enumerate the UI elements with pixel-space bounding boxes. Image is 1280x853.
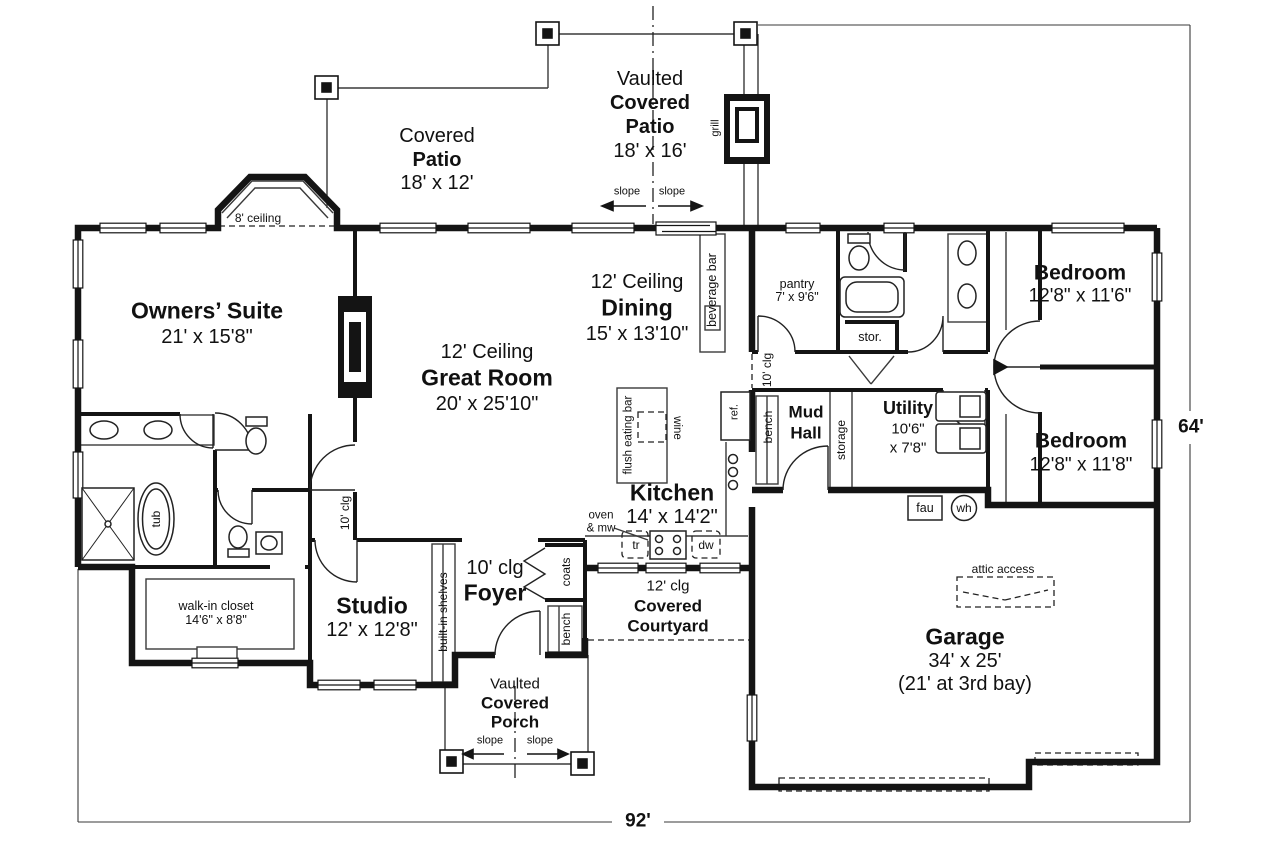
washer-dryer — [936, 392, 986, 453]
pantry-name: pantry — [780, 278, 815, 291]
vaulted-patio-line3: Patio — [626, 117, 675, 137]
storage-closet-label: stor. — [858, 331, 882, 344]
garage-dims: 34' x 25' — [928, 651, 1001, 671]
bedroom-upper-dims: 12'8" x 11'6" — [1029, 287, 1132, 306]
kitchen-name: Kitchen — [630, 482, 714, 505]
courtyard-line2: Courtyard — [627, 618, 708, 635]
dining-ceiling: 12' Ceiling — [591, 272, 684, 292]
beverage-bar-label: beverage bar — [706, 253, 719, 327]
owners-suite-dims: 21' x 15'8" — [161, 327, 252, 347]
bathtub — [840, 277, 904, 317]
great-room-dims: 20' x 25'10" — [436, 394, 539, 414]
fireplace — [338, 296, 372, 398]
master-hall-ceiling-label: 10' clg — [339, 496, 351, 530]
fau-label: fau — [916, 502, 933, 515]
attic-access-label: attic access — [972, 563, 1035, 575]
dining-name: Dining — [601, 297, 673, 320]
wall-ovens — [729, 455, 738, 490]
porch-line1: Vaulted — [490, 677, 540, 692]
dining-dims: 15' x 13'10" — [586, 324, 689, 344]
outline-lines — [80, 34, 1006, 764]
studio-dims: 12' x 12'8" — [326, 620, 417, 640]
great-room-ceiling: 12' Ceiling — [441, 342, 534, 362]
patio-slider-door — [656, 222, 716, 235]
covered-patio-line1: Covered — [399, 126, 475, 146]
tub-label: tub — [150, 511, 162, 528]
garage-note: (21' at 3rd bay) — [898, 674, 1032, 694]
shower — [82, 488, 134, 560]
studio-name: Studio — [336, 595, 408, 618]
courtyard-line1: Covered — [634, 598, 702, 615]
bedroom-upper-name: Bedroom — [1034, 263, 1126, 284]
grill-label: grill — [711, 119, 722, 136]
flush-eating-bar-label: flush eating bar — [623, 396, 635, 475]
range — [650, 531, 686, 559]
kitchen-dims: 14' x 14'2" — [626, 507, 717, 527]
door-meet-marker — [994, 360, 1007, 374]
toilet — [848, 234, 870, 270]
toilet — [228, 526, 249, 557]
trash-label: tr — [632, 539, 639, 551]
overall-width-dim: 92' — [625, 812, 651, 831]
vaulted-patio-dims: 18' x 16' — [613, 141, 686, 161]
pantry-dims: 7' x 9'6" — [775, 291, 818, 304]
slope-label: slope — [614, 187, 640, 198]
vaulted-patio-line2: Covered — [610, 93, 690, 113]
floor-plan: Vaulted Covered Patio 18' x 16' Covered … — [0, 0, 1280, 853]
foyer-ceiling: 10' clg — [466, 558, 523, 578]
hall-ceiling-label: 10' clg — [761, 353, 773, 387]
mud-hall-line2: Hall — [790, 425, 821, 442]
bedroom-lower-name: Bedroom — [1035, 431, 1127, 452]
utility-dims-line1: 10'6" — [891, 422, 924, 437]
oven-label-line1: oven — [589, 510, 614, 522]
storage-label: storage — [835, 420, 847, 460]
wh-label: wh — [956, 502, 971, 514]
walk-in-closet-dims: 14'6" x 8'8" — [185, 614, 247, 627]
dishwasher-label: dw — [698, 539, 713, 551]
grill — [724, 94, 770, 164]
slope-label: slope — [477, 736, 503, 747]
pedestal-sink — [256, 532, 282, 554]
utility-name: Utility — [883, 399, 933, 417]
foyer-name: Foyer — [464, 582, 527, 605]
vaulted-patio-line1: Vaulted — [617, 69, 683, 89]
overall-depth-dim: 64' — [1178, 418, 1204, 437]
covered-patio-dims: 18' x 12' — [400, 173, 473, 193]
built-in-shelves-label: built-in shelves — [437, 572, 449, 651]
ref-label: ref. — [730, 404, 741, 420]
oven-label-line2: & mw — [587, 523, 616, 535]
wine-label: wine — [670, 416, 682, 440]
coats-label: coats — [560, 558, 572, 587]
mud-bench-label: bench — [762, 411, 774, 444]
ceiling-8-label: 8' ceiling — [235, 212, 281, 224]
foyer-bench-label: bench — [560, 613, 572, 646]
walk-in-closet-name: walk-in closet — [178, 600, 253, 613]
owners-suite-name: Owners’ Suite — [131, 300, 283, 323]
garage-name: Garage — [925, 626, 1004, 649]
slope-label: slope — [659, 187, 685, 198]
great-room-name: Great Room — [421, 367, 553, 390]
toilet — [246, 417, 267, 454]
courtyard-ceiling: 12' clg — [647, 579, 690, 594]
bedroom-lower-dims: 12'8" x 11'8" — [1030, 456, 1133, 475]
porch-line3: Porch — [491, 714, 539, 731]
slope-label: slope — [527, 736, 553, 747]
utility-dims-line2: x 7'8" — [890, 441, 927, 456]
porch-line2: Covered — [481, 695, 549, 712]
covered-patio-line2: Patio — [413, 150, 462, 170]
mud-hall-line1: Mud — [789, 404, 824, 421]
